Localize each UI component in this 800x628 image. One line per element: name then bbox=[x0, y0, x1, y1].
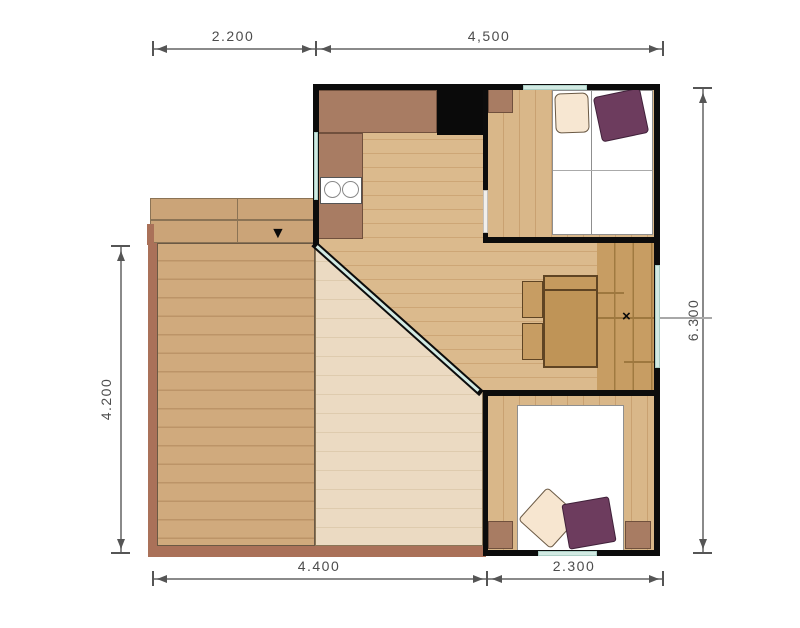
dimension-label-bottom-left: 4.400 bbox=[279, 558, 359, 574]
stove bbox=[320, 177, 362, 204]
dimension-arrow bbox=[117, 539, 125, 553]
pillow-purple bbox=[561, 496, 616, 550]
dimension-label-bottom-right: 2.300 bbox=[534, 558, 614, 574]
wall-bedroom1-left-stub bbox=[483, 233, 488, 243]
step-edge bbox=[151, 219, 317, 221]
dining-table bbox=[543, 275, 598, 368]
window-right-wall bbox=[655, 265, 660, 368]
dimension-arrow bbox=[153, 45, 167, 53]
pillow-purple bbox=[593, 88, 650, 143]
kitchen-appliance bbox=[437, 87, 483, 135]
table-edge bbox=[545, 277, 596, 291]
bedroom2-nightstand bbox=[625, 521, 651, 549]
bedroom1-cabinet bbox=[488, 88, 513, 113]
dimension-arrow bbox=[473, 575, 487, 583]
pillow-cream bbox=[554, 92, 589, 133]
entry-steps bbox=[150, 198, 318, 243]
deck-frame bbox=[148, 545, 486, 557]
dimension-arrow bbox=[699, 89, 707, 103]
bedroom2-nightstand bbox=[488, 521, 513, 549]
floor-plan-canvas: 2.200 4,500 4.400 2.300 4.200 6.300 ▼ bbox=[0, 0, 800, 628]
bed-sheet-line bbox=[553, 170, 652, 171]
dimension-line-bottom bbox=[152, 578, 663, 580]
wall-bedroom1-left bbox=[483, 87, 488, 190]
step-divider bbox=[237, 199, 238, 242]
entry-arrow-icon: ▼ bbox=[270, 226, 286, 242]
door-opening bbox=[483, 190, 488, 233]
window-bottom-wall bbox=[538, 551, 597, 556]
dining-stool bbox=[522, 323, 543, 360]
dining-stool bbox=[522, 281, 543, 318]
deck-floor-left bbox=[157, 243, 315, 546]
parquet-seam bbox=[624, 361, 654, 363]
deck-frame bbox=[147, 224, 154, 245]
dimension-arrow bbox=[649, 575, 663, 583]
dimension-arrow bbox=[117, 247, 125, 261]
burner-icon bbox=[324, 181, 341, 198]
dimension-label-top-left: 2.200 bbox=[193, 28, 273, 44]
window-top-wall bbox=[523, 85, 587, 90]
dimension-line-left bbox=[120, 245, 122, 553]
dimension-label-left: 4.200 bbox=[98, 369, 114, 429]
dimension-line-right bbox=[702, 87, 704, 553]
cross-mark: × bbox=[622, 309, 631, 324]
dimension-line-top bbox=[152, 48, 663, 50]
wall-bedroom2-left bbox=[483, 390, 488, 556]
dimension-label-right: 6.300 bbox=[685, 290, 701, 350]
dimension-arrow bbox=[649, 45, 663, 53]
dimension-arrow bbox=[302, 45, 316, 53]
wall-bedroom2-top bbox=[483, 390, 660, 396]
dimension-arrow bbox=[317, 45, 331, 53]
dimension-arrow bbox=[488, 575, 502, 583]
wall-bedroom1-bottom bbox=[483, 237, 660, 243]
kitchen-counter-top bbox=[318, 90, 437, 133]
burner-icon bbox=[342, 181, 359, 198]
dimension-arrow bbox=[699, 539, 707, 553]
parquet-seam bbox=[597, 292, 624, 294]
dimension-label-top-right: 4,500 bbox=[449, 28, 529, 44]
dimension-arrow bbox=[153, 575, 167, 583]
window-left-wall bbox=[314, 132, 319, 200]
